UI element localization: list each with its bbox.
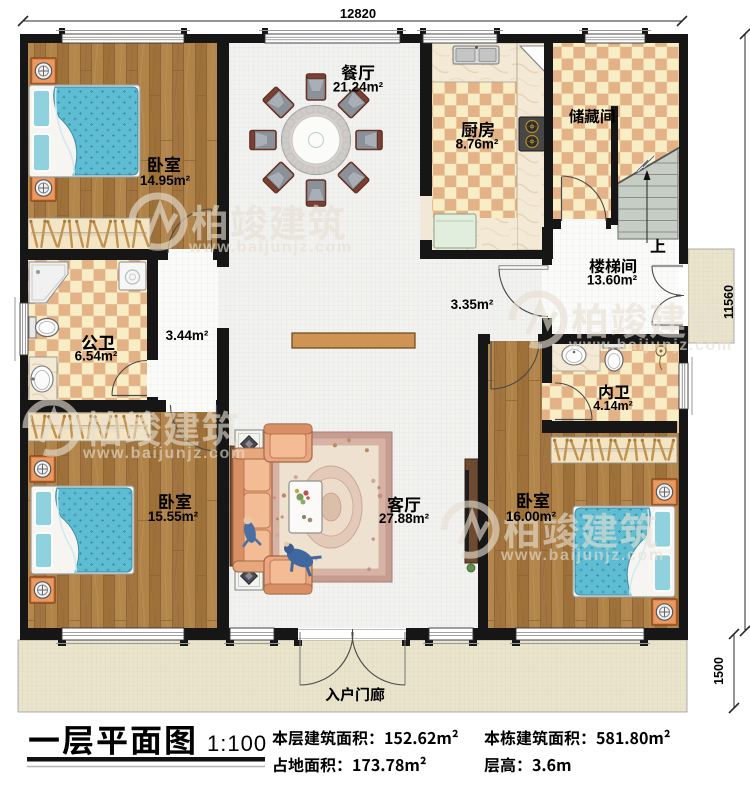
svg-text:3.44m²: 3.44m² bbox=[166, 328, 209, 343]
svg-text:www.baijunjz.com: www.baijunjz.com bbox=[82, 445, 247, 462]
svg-text:1:100: 1:100 bbox=[207, 731, 267, 756]
svg-text:13.60m²: 13.60m² bbox=[587, 273, 638, 288]
svg-text:11560: 11560 bbox=[722, 285, 736, 319]
svg-text:3.35m²: 3.35m² bbox=[451, 297, 494, 312]
svg-text:6.54m²: 6.54m² bbox=[75, 349, 118, 364]
svg-text:21.24m²: 21.24m² bbox=[333, 80, 384, 95]
svg-text:1500: 1500 bbox=[712, 657, 726, 685]
svg-text:27.88m²: 27.88m² bbox=[379, 511, 430, 526]
svg-text:www.baijunjz.com: www.baijunjz.com bbox=[500, 547, 665, 564]
svg-text:8.76m²: 8.76m² bbox=[456, 137, 499, 152]
svg-text:15.55m²: 15.55m² bbox=[148, 509, 199, 524]
svg-text:14.95m²: 14.95m² bbox=[140, 173, 191, 188]
svg-text:www.baijunjz.com: www.baijunjz.com bbox=[188, 239, 353, 256]
svg-text:www.baijunjz.com: www.baijunjz.com bbox=[568, 337, 733, 354]
svg-text:16.00m²: 16.00m² bbox=[506, 509, 557, 524]
svg-text:4.14m²: 4.14m² bbox=[593, 399, 633, 413]
svg-text:12820: 12820 bbox=[340, 6, 376, 21]
